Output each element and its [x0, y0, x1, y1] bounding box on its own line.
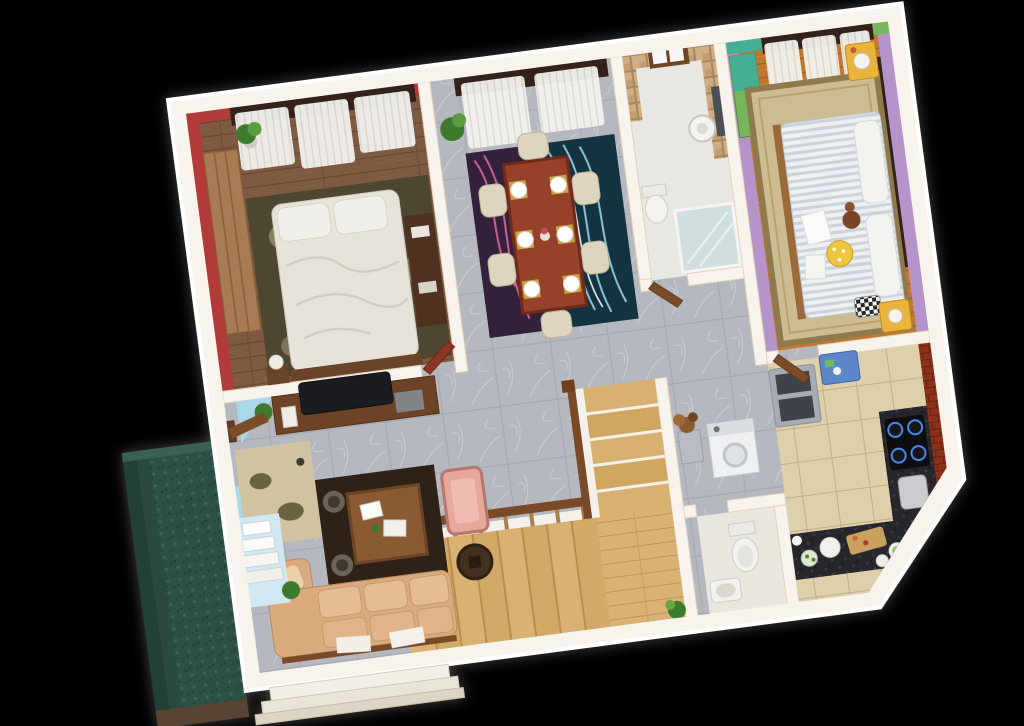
window-pane — [652, 51, 667, 65]
floor-plan-canvas — [0, 0, 1024, 726]
throw-blanket — [336, 635, 371, 653]
books — [281, 406, 297, 428]
washer-door — [723, 443, 748, 468]
dining-chair — [478, 183, 508, 218]
dresser-drawer — [418, 281, 437, 294]
burner — [907, 419, 923, 435]
burner — [911, 445, 927, 461]
table-item — [468, 555, 481, 568]
media-device — [394, 389, 424, 412]
dining-chair — [540, 309, 573, 339]
checker-cushion — [854, 295, 882, 318]
sheer-curtain — [353, 90, 416, 153]
flower-pedestal — [678, 429, 704, 464]
blue-prep-table — [819, 350, 861, 385]
gas-hob — [884, 414, 930, 471]
newel-post — [561, 379, 575, 393]
fridge-door-lower — [778, 395, 815, 421]
pillow — [333, 195, 389, 235]
burner — [891, 448, 907, 464]
interior — [183, 17, 962, 677]
dining-chair — [487, 252, 517, 287]
back-cushion — [317, 585, 362, 618]
dining-chair — [571, 171, 601, 206]
wall-wc-top-stub — [683, 505, 696, 518]
green-item — [825, 359, 835, 367]
burner — [887, 422, 903, 438]
back-cushion — [363, 579, 408, 612]
dining-chair — [580, 240, 610, 275]
papers — [805, 255, 826, 280]
back-cushion — [409, 574, 450, 607]
pillow — [276, 202, 332, 242]
dining-chair — [517, 131, 550, 161]
green-wardrobe-top — [729, 53, 759, 92]
sheer-curtain — [294, 99, 356, 170]
floor-plan-render — [0, 0, 1024, 726]
dresser-drawer — [411, 225, 430, 238]
window-pane — [669, 48, 684, 62]
magazine — [384, 520, 406, 536]
sheer-curtain — [534, 66, 605, 134]
